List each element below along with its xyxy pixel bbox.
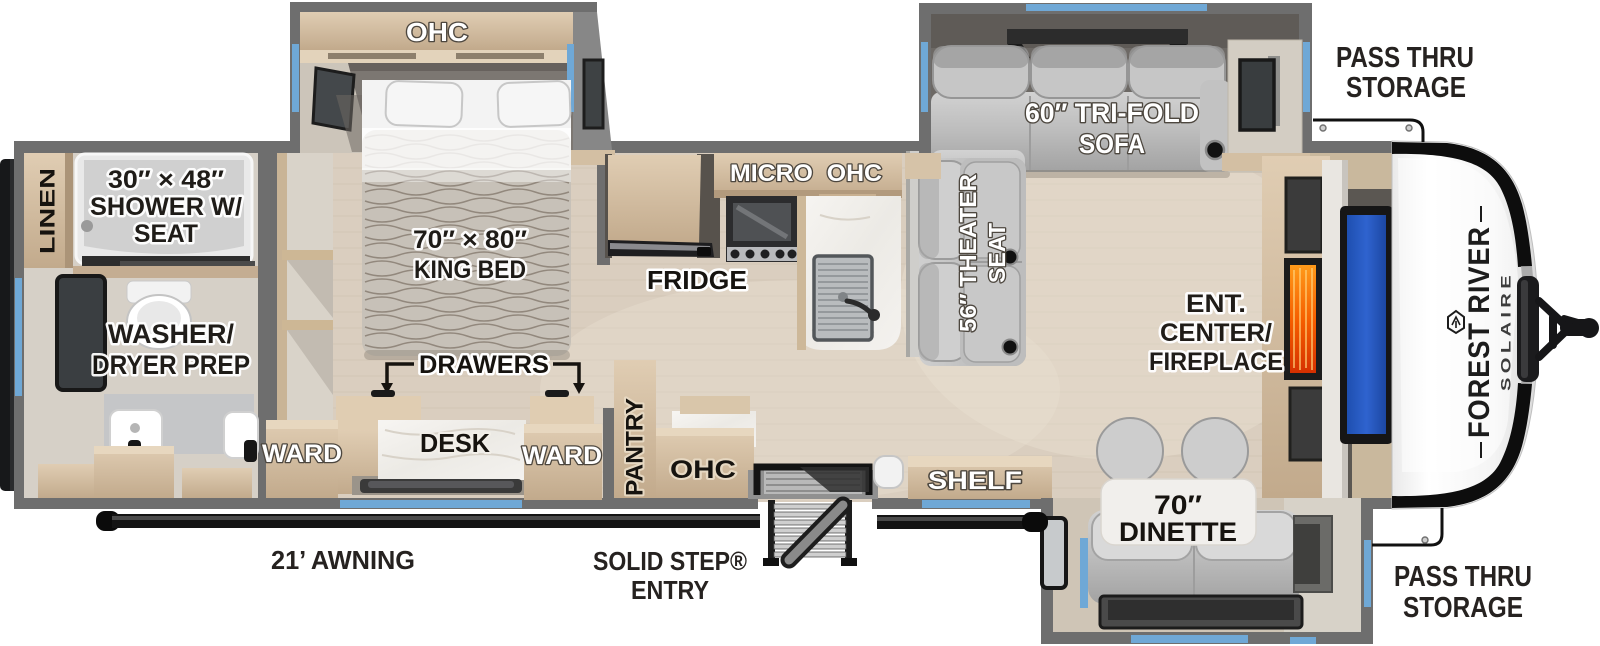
svg-text:WARD: WARD [262,440,342,468]
svg-text:LINEN: LINEN [37,168,60,254]
svg-text:DESK: DESK [420,428,490,458]
svg-text:SEAT: SEAT [984,223,1010,283]
svg-text:DINETTE: DINETTE [1119,517,1237,547]
svg-text:ENT.: ENT. [1186,290,1246,318]
svg-text:MICRO OHC: MICRO OHC [730,160,882,187]
svg-text:SHOWER W/: SHOWER W/ [90,193,242,221]
svg-text:PASS THRU: PASS THRU [1336,42,1474,74]
svg-text:PASS THRU: PASS THRU [1394,561,1532,593]
svg-text:FOREST RIVER: FOREST RIVER [1463,226,1496,438]
svg-text:70″ × 80″: 70″ × 80″ [413,226,527,254]
svg-text:60″ TRI-FOLD: 60″ TRI-FOLD [1025,98,1199,128]
svg-text:SHELF: SHELF [928,467,1022,495]
svg-text:KING BED: KING BED [414,256,526,284]
svg-text:PANTRY: PANTRY [621,398,648,496]
svg-text:SOFA: SOFA [1079,129,1145,159]
svg-text:21’ AWNING: 21’ AWNING [271,545,415,575]
svg-text:OHC: OHC [670,456,736,484]
svg-text:WASHER/: WASHER/ [108,319,234,349]
svg-text:56″ THEATER: 56″ THEATER [955,174,981,332]
svg-text:DRYER PREP: DRYER PREP [92,350,250,380]
svg-text:STORAGE: STORAGE [1403,592,1523,624]
svg-text:WARD: WARD [522,442,602,470]
svg-text:ENTRY: ENTRY [631,575,709,605]
svg-text:OHC: OHC [406,17,468,47]
svg-text:SEAT: SEAT [134,220,198,248]
svg-text:SOLID STEP®: SOLID STEP® [593,546,747,576]
svg-text:CENTER/: CENTER/ [1160,319,1272,347]
svg-text:STORAGE: STORAGE [1346,72,1466,104]
svg-text:FIREPLACE: FIREPLACE [1149,348,1283,376]
svg-text:FRIDGE: FRIDGE [647,265,747,295]
svg-text:DRAWERS: DRAWERS [419,351,549,379]
svg-text:SOLAIRE: SOLAIRE [1498,271,1514,391]
svg-text:30″ × 48″: 30″ × 48″ [108,166,224,194]
svg-text:70″: 70″ [1154,490,1202,520]
